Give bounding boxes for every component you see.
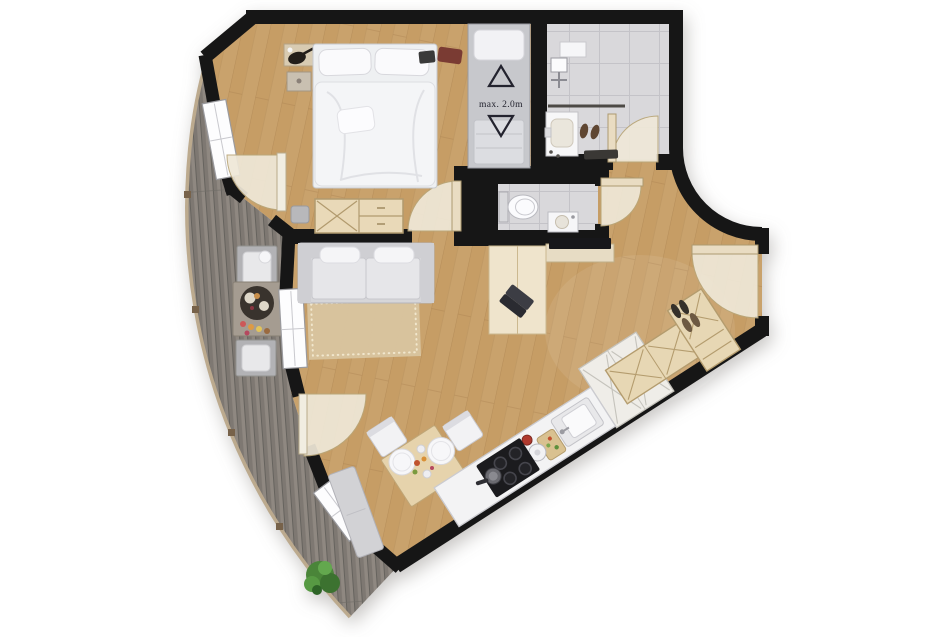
floor-plan-canvas: max. 2.0m bbox=[0, 0, 940, 637]
door-mat bbox=[584, 149, 618, 159]
pillow bbox=[319, 48, 372, 76]
desk bbox=[489, 246, 546, 334]
tv bbox=[549, 238, 611, 249]
folded-blanket bbox=[474, 120, 524, 164]
vanity-sink bbox=[545, 112, 578, 156]
throw-pillow bbox=[337, 106, 376, 135]
rolled-towel bbox=[259, 251, 271, 263]
sofa-cushion bbox=[320, 247, 360, 263]
serving-tray bbox=[240, 286, 274, 320]
floor-plan-svg: max. 2.0m bbox=[0, 0, 940, 637]
sofa bbox=[298, 243, 434, 303]
living-room-rug bbox=[307, 296, 421, 360]
tv-sideboard bbox=[546, 238, 614, 262]
balcony-lounge-chair-2 bbox=[236, 340, 276, 376]
dresser bbox=[315, 199, 403, 233]
double-bed bbox=[313, 44, 437, 188]
pillow bbox=[474, 30, 524, 60]
bedroom-balcony-door-leaf bbox=[277, 153, 286, 211]
sofa-cushion bbox=[374, 247, 414, 263]
bath-shelf bbox=[560, 42, 586, 57]
pouf bbox=[291, 206, 309, 223]
hand-basin bbox=[548, 212, 578, 232]
single-bed bbox=[468, 24, 530, 168]
ceiling-height-label: max. 2.0m bbox=[479, 100, 523, 110]
living-balcony-door-leaf bbox=[299, 394, 307, 454]
entry-door-leaf bbox=[692, 245, 758, 254]
wc-door-leaf bbox=[601, 178, 643, 186]
bedroom-door-leaf bbox=[452, 181, 461, 231]
balcony-side-table bbox=[233, 282, 283, 336]
